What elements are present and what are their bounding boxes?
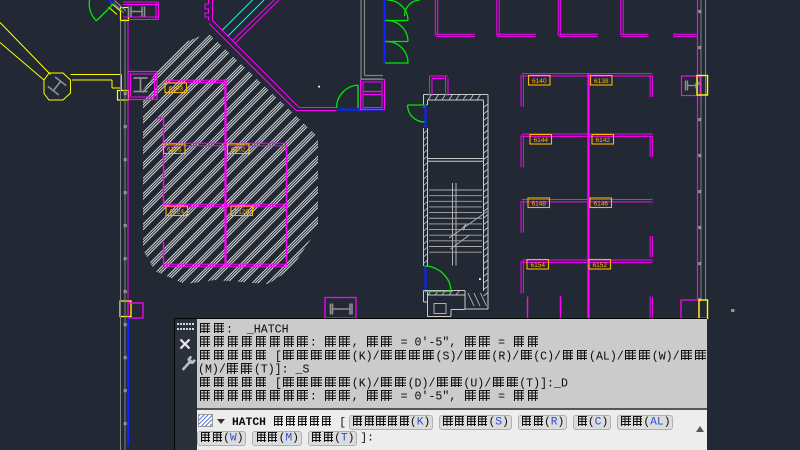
svg-text:6102: 6102 — [231, 146, 246, 153]
svg-text:6146: 6146 — [594, 200, 609, 207]
svg-text:6142: 6142 — [596, 137, 611, 144]
svg-text:6105: 6105 — [167, 146, 182, 153]
svg-text:6103: 6103 — [169, 85, 184, 92]
svg-text:6120: 6120 — [235, 208, 250, 215]
svg-text:6140: 6140 — [532, 78, 547, 85]
svg-text:6152: 6152 — [593, 262, 608, 269]
svg-text:6138: 6138 — [594, 78, 609, 85]
svg-text:6154: 6154 — [531, 262, 546, 269]
svg-text:6124: 6124 — [170, 208, 185, 215]
svg-text:6148: 6148 — [532, 200, 547, 207]
svg-text:6144: 6144 — [534, 137, 549, 144]
